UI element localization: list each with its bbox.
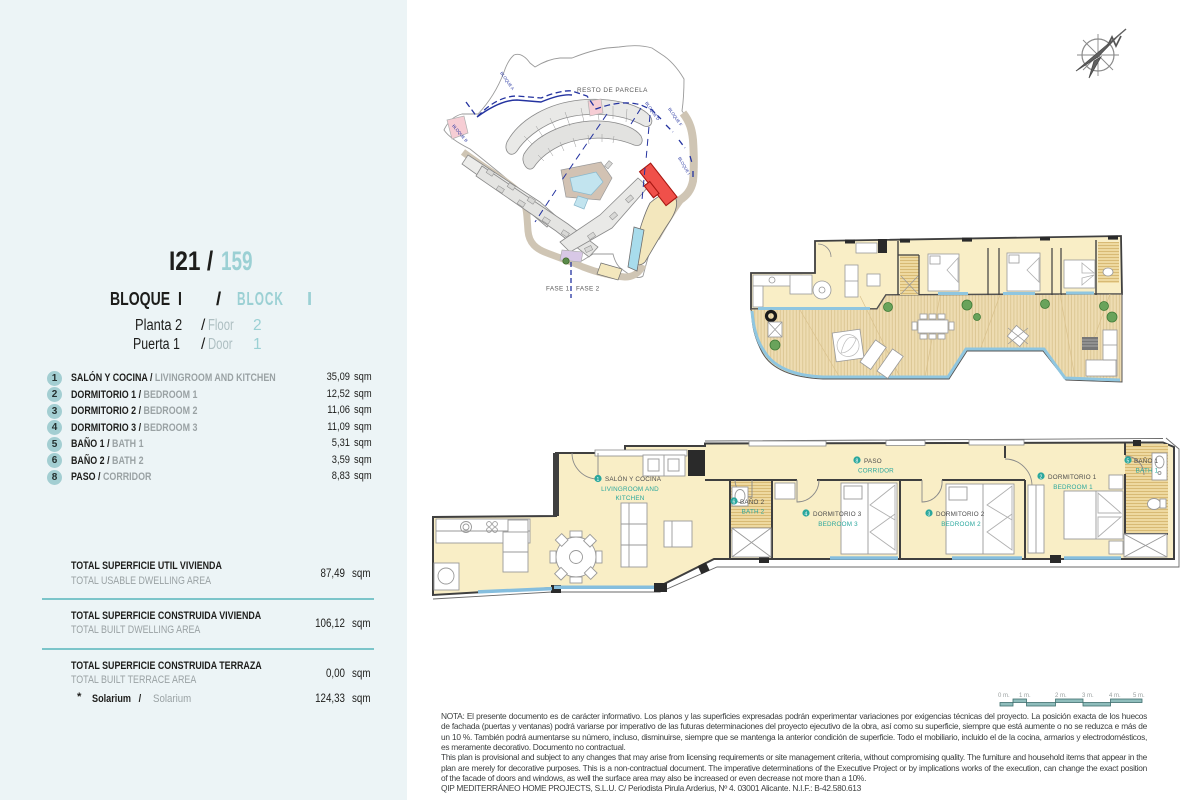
svg-text:4: 4 — [805, 512, 808, 518]
svg-text:FASE 1: FASE 1 — [546, 286, 570, 293]
svg-text:4 m.: 4 m. — [1109, 693, 1121, 699]
svg-text:BEDROOM 3: BEDROOM 3 — [818, 521, 858, 528]
svg-text:2: 2 — [1040, 475, 1043, 481]
svg-text:8: 8 — [856, 459, 859, 465]
svg-text:FASE 2: FASE 2 — [576, 286, 600, 293]
svg-text:PASO: PASO — [864, 458, 882, 465]
svg-text:0 m.: 0 m. — [998, 693, 1010, 699]
svg-text:DORMITORIO 1: DORMITORIO 1 — [1048, 474, 1097, 481]
svg-text:BEDROOM 2: BEDROOM 2 — [941, 521, 981, 528]
svg-text:SALÓN Y COCINA: SALÓN Y COCINA — [605, 474, 662, 483]
svg-text:3: 3 — [928, 512, 931, 518]
svg-text:RESTO DE PARCELA: RESTO DE PARCELA — [577, 87, 648, 94]
svg-text:DORMITORIO 3: DORMITORIO 3 — [813, 511, 862, 518]
svg-text:1: 1 — [597, 477, 600, 483]
svg-text:BEDROOM 1: BEDROOM 1 — [1053, 484, 1093, 491]
svg-text:LIVINGROOM AND: LIVINGROOM AND — [601, 486, 659, 493]
svg-text:5: 5 — [1127, 459, 1130, 465]
svg-text:5 m.: 5 m. — [1133, 693, 1145, 699]
svg-text:BAÑO 1: BAÑO 1 — [1134, 456, 1159, 465]
svg-text:BATH 2: BATH 2 — [742, 509, 765, 516]
svg-text:1 m.: 1 m. — [1019, 693, 1031, 699]
svg-text:KITCHEN: KITCHEN — [615, 495, 644, 502]
svg-text:6: 6 — [733, 500, 736, 506]
svg-text:BATH 1: BATH 1 — [1136, 468, 1159, 475]
svg-text:2 m.: 2 m. — [1055, 693, 1067, 699]
svg-text:CORRIDOR: CORRIDOR — [858, 468, 894, 475]
svg-text:DORMITORIO 2: DORMITORIO 2 — [936, 511, 985, 518]
svg-text:BAÑO 2: BAÑO 2 — [740, 497, 765, 506]
svg-text:3 m.: 3 m. — [1082, 693, 1094, 699]
